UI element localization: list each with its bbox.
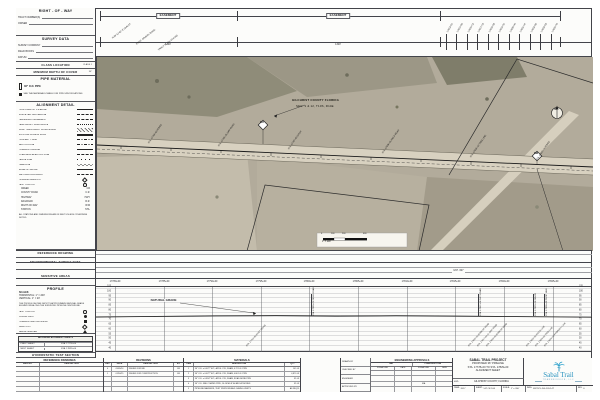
rev-by: JM bbox=[174, 372, 183, 376]
legend-symbol-icon bbox=[77, 119, 93, 120]
rev-label: REV: bbox=[578, 388, 582, 390]
adjoining-label: NEXT SHEET bbox=[19, 348, 45, 350]
material-description: 36" O.D. x 0.672" W.T., API-5L X70, DSAW… bbox=[194, 367, 285, 371]
band-divider bbox=[16, 278, 592, 279]
tick-line bbox=[456, 34, 457, 50]
material-item: 1 bbox=[184, 367, 194, 371]
pipe-material-row: 36" O.D. PIPE bbox=[16, 81, 95, 90]
revisions-table: REVISIONS REV DATE DESCRIPTION BY 0 09/0… bbox=[103, 358, 183, 392]
abbr-term: CREEK bbox=[21, 188, 29, 191]
abbr-code: STA. bbox=[85, 209, 90, 212]
grade-label-leader bbox=[180, 303, 256, 313]
panel-title: HYDROSTATIC TEST SECTION bbox=[16, 353, 95, 357]
station-tick: 17824+76 bbox=[551, 18, 553, 50]
scale-tick-label: 400 bbox=[363, 233, 366, 235]
scale-caption: 1" = 200' bbox=[322, 241, 331, 244]
station-tick: 17816+12 bbox=[467, 18, 469, 50]
field-blank bbox=[42, 18, 93, 19]
col-by: BY bbox=[174, 363, 183, 366]
tree-dot bbox=[535, 205, 539, 209]
year-label: YEAR: bbox=[454, 388, 460, 390]
legend-symbol-icon bbox=[77, 144, 93, 145]
station-tick: 17819+31 bbox=[498, 18, 500, 50]
band-divider bbox=[16, 250, 592, 251]
scale-tick-label: 0 bbox=[321, 233, 322, 235]
panel-survey-data: SURVEY DATA SURVEY COMPANYFIELD BOOKSDAT… bbox=[16, 36, 95, 62]
segment-label: EASEMENT bbox=[326, 13, 350, 19]
band-subline bbox=[96, 272, 592, 273]
group-bid: BID bbox=[371, 363, 413, 366]
panel-title: SURVEY DATA bbox=[16, 36, 95, 41]
tree-dot bbox=[485, 97, 489, 101]
material-description: PIPELINE MARKERS, TEST STATIONS AND CASI… bbox=[194, 387, 285, 391]
material-qty: 85 LF bbox=[285, 382, 300, 386]
panel-right-of-way: RIGHT - OF - WAY TRACT NUMBER(S)OWNER bbox=[16, 8, 95, 36]
material-qty: 85 LF bbox=[285, 377, 300, 381]
tick-line bbox=[467, 34, 468, 50]
col-dwg-no: DWG NO. bbox=[16, 363, 40, 366]
panel-profile-legend: PROFILE SCALES: HORIZONTAL: 1" = 200' VE… bbox=[16, 286, 95, 334]
location-row: LOC: GILCHRIST COUNTY, FLORIDA bbox=[453, 378, 524, 385]
scale-tick-label: 200 bbox=[342, 233, 345, 235]
legend-label: TEST STATION bbox=[19, 311, 35, 314]
tree-dot bbox=[396, 106, 399, 109]
legend-symbol-icon bbox=[77, 139, 93, 140]
field-label: FIELD BOOKS bbox=[18, 51, 34, 54]
profile-station-label: 17805+00 bbox=[353, 281, 364, 284]
field-row: OWNER bbox=[18, 21, 93, 26]
abbr-code: CR bbox=[87, 188, 90, 191]
legend-symbol-icon bbox=[83, 183, 87, 187]
abbr-code: R/W bbox=[86, 205, 90, 208]
tree-dot bbox=[155, 79, 159, 83]
na-cell: N/A bbox=[412, 382, 436, 386]
tick-line bbox=[530, 34, 531, 50]
abbr-term: HIGHWAY bbox=[21, 197, 32, 200]
pipe-symbol-icon bbox=[19, 83, 22, 90]
legend-symbol-icon bbox=[83, 310, 87, 314]
legend-symbol-icon bbox=[77, 164, 93, 166]
panel-title: RIGHT - OF - WAY bbox=[16, 8, 95, 13]
segment-label: EASEMENT bbox=[156, 13, 180, 19]
tick-line bbox=[488, 34, 489, 50]
sheet-value: 147 OF 166 bbox=[483, 388, 495, 390]
abbr-code: C.R. bbox=[85, 192, 90, 195]
panel-class-location: CLASS LOCATION CLASS 1 bbox=[16, 62, 95, 69]
band-subline bbox=[96, 254, 592, 255]
legend-symbol-icon bbox=[77, 134, 93, 136]
pipe-size-label: 36" O.D. PIPE bbox=[24, 86, 41, 89]
legend-symbol-icon bbox=[77, 149, 93, 150]
band-divider bbox=[16, 262, 592, 263]
legend-symbol-icon bbox=[77, 169, 93, 170]
scale-segment bbox=[334, 238, 345, 240]
profile-station-label: 17780+00 bbox=[110, 281, 121, 284]
col-rev: REV bbox=[104, 363, 112, 366]
band-subline bbox=[96, 267, 592, 268]
panel-title: SENSITIVE AREAS bbox=[16, 270, 95, 278]
material-item: 5 bbox=[184, 387, 194, 391]
material-qty: 4,870 LF bbox=[285, 372, 300, 376]
pipe-note-text: SEE THE MATERIALS TABLE FOR PIPE SPECIFI… bbox=[24, 93, 83, 96]
callout-text: STA. 17817+64 DIRT ROAD bbox=[480, 288, 482, 316]
tick-mark bbox=[560, 37, 561, 47]
col-description: DESCRIPTION bbox=[128, 363, 174, 366]
station-tick: 17820+44 bbox=[509, 18, 511, 50]
adjoining-table: ADJOINING ALIGNMENT SHEETS PREV. SHEET S… bbox=[18, 336, 93, 353]
approvals-label-column: DRAWN BY CHECKED BY ENGINEER APPROVED BY bbox=[341, 358, 371, 392]
material-qty: AS REQ'D bbox=[285, 387, 300, 391]
legend-label: FENCE LINE bbox=[19, 159, 33, 162]
tick-mark bbox=[237, 37, 238, 47]
col-date: DATE bbox=[436, 367, 453, 370]
legend-label: ADDL. TEMPORARY WORKSPACE bbox=[19, 129, 56, 132]
approval-row: DRAWN BY bbox=[341, 358, 370, 367]
tick-mark bbox=[440, 37, 441, 47]
north-letter: N bbox=[555, 109, 557, 112]
engineering-approvals-table: DRAWN BY CHECKED BY ENGINEER APPROVED BY… bbox=[340, 358, 452, 392]
adjoining-row: NEXT SHEET STA. 17829+00 bbox=[19, 346, 92, 351]
alignment-sheet: RIGHT - OF - WAY TRACT NUMBER(S)OWNER SU… bbox=[0, 0, 600, 400]
panel-adjoining-sheets: ADJOINING ALIGNMENT SHEETS PREV. SHEET S… bbox=[16, 334, 95, 352]
col-item: ITEM bbox=[184, 363, 194, 366]
callout-line bbox=[311, 294, 312, 316]
logo-rule bbox=[575, 381, 582, 382]
scale-value: 1" = 200' bbox=[511, 388, 520, 390]
notes-box bbox=[300, 358, 340, 392]
legend-label: AERIAL MARKER bbox=[19, 331, 38, 334]
sheet-label: SHEET: bbox=[476, 388, 482, 390]
milepost-band-label: M.P. 337 bbox=[452, 270, 465, 273]
tick-mark bbox=[237, 11, 238, 21]
legend-label: MILE POST bbox=[19, 326, 31, 329]
legend-label: EDGE OF WATER bbox=[19, 169, 38, 172]
logo-subtitle: TRANSMISSION, LLC bbox=[543, 380, 575, 382]
adjoining-station: STA. 17829+00 bbox=[45, 348, 92, 350]
materials-table: MATERIALS ITEM DESCRIPTION QTY 1 36" O.D… bbox=[183, 358, 300, 392]
dwg-label: DWG: bbox=[527, 388, 532, 390]
profile-station-label: 17815+00 bbox=[450, 281, 461, 284]
field-row: FIELD BOOKS bbox=[18, 49, 93, 54]
approval-label: APPROVED BY bbox=[342, 386, 357, 388]
legend-label: SURVEYED CENTERLINE bbox=[19, 114, 47, 117]
tick-mark bbox=[440, 11, 441, 21]
county-label-line2: SEC. 1 & 12, T10S, R14E bbox=[296, 105, 334, 108]
abbr-code: HWY bbox=[85, 197, 90, 200]
adjoining-label: PREV. SHEET bbox=[19, 343, 45, 345]
field-row: DATUM bbox=[18, 55, 93, 60]
adjoining-station: STA. 17778+00 bbox=[45, 343, 92, 345]
profile-station-label: 17810+00 bbox=[402, 281, 413, 284]
field-label: DATUM bbox=[18, 57, 26, 60]
abbr-term: RAILROAD bbox=[21, 201, 33, 204]
sheet-type: ALIGNMENT SHEET bbox=[453, 370, 523, 373]
profile-station-label: 17790+00 bbox=[207, 281, 218, 284]
callout-text: STA. 17800+21 FIELD ROAD bbox=[313, 287, 315, 316]
legend-label: PROPERTY LINE bbox=[19, 139, 37, 142]
callout-line bbox=[544, 294, 545, 316]
class-location-value: CLASS 1 bbox=[83, 64, 92, 66]
station-tick: 17818+28 bbox=[488, 18, 490, 50]
profile-station-label: 17785+00 bbox=[159, 281, 170, 284]
legend-symbol-icon bbox=[77, 159, 93, 160]
sidebar: RIGHT - OF - WAY TRACT NUMBER(S)OWNER SU… bbox=[16, 8, 96, 392]
callout-text: STA. 17823+30 FENCE bbox=[535, 293, 537, 316]
tick-line bbox=[446, 34, 447, 50]
rev-description: ISSUED FOR BID bbox=[128, 367, 174, 371]
tick-line bbox=[519, 34, 520, 50]
station-tick: 17813+91 bbox=[446, 18, 448, 50]
rev-number: 1 bbox=[104, 372, 112, 376]
field-row: SURVEY COMPANY bbox=[18, 43, 93, 48]
abbr-term: COUNTY ROAD bbox=[21, 192, 38, 195]
legend-label: TEST STATION bbox=[19, 184, 35, 187]
abbr-term: RIGHT-OF-WAY bbox=[21, 205, 38, 208]
tick-mark bbox=[100, 11, 101, 21]
abbr-term: STATION bbox=[21, 209, 31, 212]
approval-label: ENGINEER bbox=[342, 378, 353, 380]
abbr-code: R.R. bbox=[85, 201, 90, 204]
rev-value: 0 bbox=[583, 388, 584, 390]
profile-station-label: 17800+00 bbox=[304, 281, 315, 284]
col-date: DATE bbox=[395, 367, 412, 370]
field-label: OWNER bbox=[18, 23, 27, 26]
field-blank bbox=[36, 52, 93, 53]
legend-label: PERMANENT EASEMENT bbox=[19, 119, 47, 122]
profile-station-label: 17825+00 bbox=[548, 281, 559, 284]
approval-row: CHECKED BY bbox=[341, 367, 370, 376]
col-description: DESCRIPTION bbox=[40, 363, 103, 366]
scale-label: SCALE: bbox=[503, 388, 510, 390]
col-date: DATE bbox=[112, 363, 128, 366]
pipe-material-note: SEE THE MATERIALS TABLE FOR PIPE SPECIFI… bbox=[16, 90, 95, 96]
field-blank bbox=[28, 58, 93, 59]
tick-line bbox=[498, 34, 499, 50]
sabal-trail-logo: Sabal Trail TRANSMISSION, LLC bbox=[524, 358, 593, 385]
tick-line bbox=[551, 34, 552, 50]
aerial-map-graphic bbox=[97, 57, 593, 251]
profile-note: THE PROFILE SHOWN DEPICTS APPROXIMATE NA… bbox=[16, 301, 95, 309]
legend-label: EXISTING ACCESS ROAD bbox=[19, 134, 47, 137]
square-marker-icon bbox=[19, 93, 22, 96]
natural-grade-label: NATURAL GRADE bbox=[150, 299, 177, 302]
project-title-area: SABAL TRAIL PROJECT PROPOSED 36" PIPELIN… bbox=[453, 358, 524, 378]
year-cell: YEAR: 2017 bbox=[453, 386, 475, 392]
rev-cell: REV: 0 bbox=[577, 386, 593, 392]
logo-rule bbox=[535, 381, 542, 382]
material-description: 36" O.D. FBE COATED PIPE, 14-16 MILS W/ … bbox=[194, 382, 285, 386]
title-block-footer: YEAR: 2017 SHEET: 147 OF 166 SCALE: 1" =… bbox=[453, 385, 593, 392]
station-tick: 17821+47 bbox=[519, 18, 521, 50]
scale-cell: SCALE: 1" = 200' bbox=[502, 386, 526, 392]
tick-mark bbox=[100, 37, 101, 47]
material-item: 3 bbox=[184, 377, 194, 381]
min-depth-value: 36" bbox=[89, 71, 92, 73]
material-description: 36" O.D. x 0.834" W.T., API-5L X70, DSAW… bbox=[194, 377, 285, 381]
profile-graphics bbox=[96, 286, 592, 352]
material-row: 5 PIPELINE MARKERS, TEST STATIONS AND CA… bbox=[184, 387, 300, 392]
profile-station-label: 17820+00 bbox=[499, 281, 510, 284]
leader-arrowhead bbox=[253, 312, 256, 315]
legend-label: OVERHEAD ELECTRIC LINE bbox=[19, 154, 50, 157]
rev-date: 09/05/14 bbox=[112, 367, 128, 371]
station-tick: 17823+63 bbox=[540, 18, 542, 50]
field-row: TRACT NUMBER(S) bbox=[18, 15, 93, 20]
callout-line bbox=[533, 294, 534, 316]
col-signature: SIGNATURE bbox=[371, 367, 395, 370]
field-label: SURVEY COMPANY bbox=[18, 45, 40, 48]
legend-symbol-icon bbox=[77, 128, 93, 132]
tick-line bbox=[540, 34, 541, 50]
legend-label: FOREIGN LINE CROSSING bbox=[19, 321, 48, 324]
segment-dimension: 1320' bbox=[335, 44, 341, 47]
scale-tick-label: 100 bbox=[331, 233, 334, 235]
approvals-grid: ENGINEERING APPROVALS BID CONSTRUCTION S… bbox=[371, 358, 453, 392]
col-signature: SIGNATURE bbox=[412, 367, 436, 370]
logo-tree-icon bbox=[552, 361, 566, 372]
tree-dot bbox=[187, 95, 190, 98]
legend-symbol-icon bbox=[84, 315, 87, 318]
dwg-value: SWT-PL-DG-101-147 bbox=[533, 388, 554, 390]
sheet-cell: SHEET: 147 OF 166 bbox=[475, 386, 502, 392]
legend-symbol-icon bbox=[84, 320, 87, 323]
panel-alignment-detail: ALIGNMENT DETAIL PROPOSED 36" PIPELINE S… bbox=[16, 102, 95, 250]
material-description: 36" O.D. x 0.672" W.T., API-5L X70, DSAW… bbox=[194, 372, 285, 376]
rev-description: ISSUED FOR CONSTRUCTION bbox=[128, 372, 174, 376]
panel-pipe-material: PIPE MATERIAL 36" O.D. PIPE SEE THE MATE… bbox=[16, 76, 95, 102]
col-qty: QTY bbox=[285, 363, 300, 366]
milepost-label-1: 337 bbox=[258, 122, 266, 125]
loc-label: LOC: bbox=[453, 381, 460, 383]
approval-row: ENGINEER bbox=[341, 375, 370, 384]
panel-title: MINIMUM DEPTH OF COVER bbox=[16, 69, 95, 74]
panel-environmental-survey: ENVIRONMENTAL SURVEY DATA bbox=[16, 258, 95, 270]
tick-mark bbox=[560, 11, 561, 21]
legend-symbol-icon bbox=[77, 174, 93, 175]
legend-label: WETLAND BOUNDARY bbox=[19, 174, 44, 177]
field-label: TRACT NUMBER(S) bbox=[18, 17, 40, 20]
tree-dot bbox=[345, 73, 349, 77]
legend-symbol-icon bbox=[77, 114, 93, 115]
rev-number: 0 bbox=[104, 367, 112, 371]
legend-symbol-icon bbox=[77, 124, 93, 125]
table-row bbox=[104, 387, 183, 392]
scale-segment bbox=[345, 238, 367, 240]
rev-date: 01/16/15 bbox=[112, 372, 128, 376]
dwg-cell: DWG: SWT-PL-DG-101-147 bbox=[526, 386, 577, 392]
logo-subtitle-row: TRANSMISSION, LLC bbox=[535, 380, 583, 382]
approval-label: CHECKED BY bbox=[342, 369, 356, 371]
adjoining-row: PREV. SHEET STA. 17778+00 bbox=[19, 342, 92, 347]
loc-value: GILCHRIST COUNTY, FLORIDA bbox=[460, 381, 523, 384]
natural-grade-line bbox=[96, 316, 592, 318]
year-value: 2017 bbox=[461, 388, 466, 390]
group-construction: CONSTRUCTION bbox=[413, 363, 454, 366]
legend-label: TEMPORARY WORKSPACE bbox=[19, 124, 49, 127]
approval-label: DRAWN BY bbox=[342, 361, 353, 363]
alignment-note: ALL STATIONS AND DIMENSIONS ARE IN FEET … bbox=[16, 213, 95, 221]
rev-by: JM bbox=[174, 367, 183, 371]
table-row bbox=[16, 387, 103, 392]
tree-dot bbox=[215, 195, 218, 198]
tick-line bbox=[509, 34, 510, 50]
field-patch bbox=[97, 153, 257, 251]
panel-min-depth-of-cover: MINIMUM DEPTH OF COVER 36" bbox=[16, 69, 95, 76]
legend-label: PIPELINE MILEPOST bbox=[19, 179, 42, 182]
reference-drawings-table: REFERENCE DRAWINGS DWG NO. DESCRIPTION bbox=[16, 358, 103, 392]
profile-station-label: 17795+00 bbox=[256, 281, 267, 284]
callout-text: STA. 17824+40 PROP. LINE bbox=[546, 288, 548, 316]
station-tick: 17822+60 bbox=[530, 18, 532, 50]
legend-label: FOREIGN PIPELINE bbox=[19, 149, 40, 152]
callout-line bbox=[478, 294, 479, 316]
approval-cells-row bbox=[371, 387, 453, 392]
material-item: 4 bbox=[184, 382, 194, 386]
county-label-line1: GILCHRIST COUNTY FLORIDA bbox=[292, 99, 339, 102]
col-description: DESCRIPTION bbox=[194, 363, 285, 366]
field-blank bbox=[42, 46, 93, 47]
panel-reference-drawing: REFERENCE DRAWING bbox=[16, 250, 95, 258]
aerial-map bbox=[96, 56, 592, 250]
legend-label: CASING VENT bbox=[19, 316, 35, 319]
station-tick: 17817+15 bbox=[477, 18, 479, 50]
legend-label: SECTION L​INE bbox=[19, 144, 35, 147]
approval-row: APPROVED BY bbox=[341, 384, 370, 393]
legend-symbol-icon bbox=[77, 109, 93, 110]
station-tick: 17814+99 bbox=[456, 18, 458, 50]
material-item: 2 bbox=[184, 372, 194, 376]
legend-symbol-icon bbox=[77, 154, 93, 155]
material-qty: 145 LF bbox=[285, 367, 300, 371]
field-blank bbox=[29, 24, 93, 25]
legend-label: TREE LINE bbox=[19, 164, 31, 167]
title-block: SABAL TRAIL PROJECT PROPOSED 36" PIPELIN… bbox=[452, 358, 592, 392]
legend-label: PROPOSED 36" PIPELINE bbox=[19, 109, 47, 112]
tick-line bbox=[477, 34, 478, 50]
